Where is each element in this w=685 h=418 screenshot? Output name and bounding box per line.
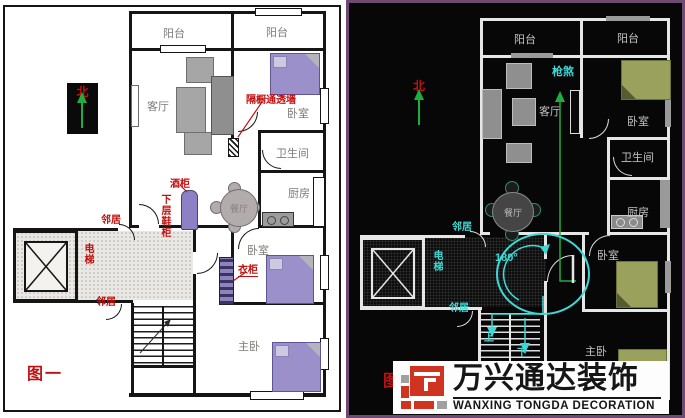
- annotation-neighbor: 邻居: [96, 293, 116, 308]
- room-label-bathroom: 卫生间: [621, 149, 654, 165]
- watermark-logo-square: [437, 401, 447, 409]
- wall: [231, 11, 234, 51]
- wall: [258, 130, 261, 173]
- room-label-balcony: 阳台: [617, 30, 639, 46]
- room-label-balcony: 阳台: [514, 31, 536, 47]
- coffee-table: [512, 98, 536, 126]
- watermark-logo-square: [401, 401, 411, 409]
- annotation-neighbor: 邻居: [452, 218, 472, 233]
- room-label-bedroom: 卧室: [627, 113, 649, 129]
- wall: [607, 180, 610, 235]
- room-label-master: 主卧: [585, 343, 607, 359]
- room-label-bedroom: 卧室: [287, 105, 309, 121]
- window: [320, 88, 329, 124]
- annotation-neighbor: 邻居: [101, 211, 121, 226]
- wine-cabinet: [181, 190, 198, 230]
- wall: [480, 55, 670, 58]
- wall: [258, 170, 326, 173]
- sofa: [482, 89, 502, 139]
- wall: [480, 232, 490, 235]
- compass-north-label: 北: [76, 85, 88, 99]
- annotation-shoe-cabinet: 下层鞋柜: [157, 194, 172, 250]
- floorplan-comparison: 北: [0, 0, 685, 418]
- wall: [580, 18, 583, 55]
- wall: [544, 232, 547, 259]
- annotation-stairs-up: 上: [484, 329, 494, 344]
- room-label-master: 主卧: [238, 338, 260, 354]
- wall: [510, 232, 589, 235]
- window: [250, 391, 304, 400]
- room-label-balcony: 阳台: [163, 25, 185, 41]
- chair: [184, 132, 212, 155]
- door-arc: [547, 255, 573, 282]
- bed: [621, 60, 671, 100]
- logo-stroke: [424, 378, 436, 391]
- kitchen-counter: [313, 177, 325, 227]
- elevator-cab: [371, 248, 415, 299]
- annotation-stairs-down: 下: [517, 344, 527, 359]
- annotation-wardrobe: 衣柜: [238, 261, 258, 277]
- logo-stroke: [414, 372, 440, 376]
- annotation-elevator: 电梯: [429, 250, 444, 280]
- window: [320, 338, 329, 370]
- watermark-en-text: WANXING TONGDA DECORATION: [453, 400, 655, 412]
- window: [511, 53, 553, 58]
- annotation-wine-cabinet: 酒柜: [170, 175, 190, 190]
- elevator-cab: [24, 241, 68, 292]
- window: [255, 8, 302, 16]
- dining-label: 餐厅: [504, 208, 522, 218]
- burner-icon: [280, 216, 289, 225]
- wall: [129, 225, 139, 228]
- dining-table: 餐厅: [492, 192, 534, 232]
- chair: [186, 57, 214, 83]
- door-arc: [589, 119, 609, 139]
- partition-hatch: [228, 138, 239, 157]
- room-label-living: 客厅: [539, 103, 561, 119]
- room-label-kitchen: 厨房: [627, 204, 649, 220]
- kitchen-counter: [660, 180, 670, 228]
- annotation-elevator: 电梯: [80, 243, 95, 273]
- annotation-partition: 隔橱通透墙: [246, 91, 296, 106]
- dining-label: 餐厅: [230, 204, 248, 214]
- stairs-divider: [162, 306, 164, 365]
- watermark-logo-square: [414, 401, 434, 409]
- window: [606, 16, 650, 21]
- wall: [607, 137, 610, 180]
- compass-north-label: 北: [413, 77, 425, 94]
- coffee-table: [176, 87, 206, 133]
- room-label-bedroom: 卧室: [247, 242, 269, 258]
- figure-label: 图一: [27, 360, 63, 384]
- watermark: 万兴通达装饰 WANXING TONGDA DECORATION: [393, 361, 669, 414]
- tv-cabinet: [570, 90, 580, 134]
- bed: [270, 53, 320, 95]
- watermark-logo-square: [401, 386, 409, 398]
- watermark-rule: [453, 397, 661, 399]
- right-floorplan-panel: 北: [346, 0, 685, 418]
- room-label-bathroom: 卫生间: [276, 145, 309, 161]
- watermark-cn-text: 万兴通达装饰: [453, 364, 639, 394]
- wall: [582, 235, 585, 309]
- annotation-gun-sha: 枪煞: [552, 63, 574, 79]
- bed: [272, 342, 321, 392]
- chair: [506, 143, 532, 163]
- wall: [580, 58, 583, 138]
- dining-table: 餐厅: [220, 189, 258, 227]
- window: [160, 45, 206, 53]
- wall: [610, 232, 670, 235]
- wall: [258, 173, 261, 228]
- annotation-180: 180°: [495, 252, 518, 264]
- wall: [607, 137, 670, 140]
- wall: [258, 130, 326, 133]
- annotation-neighbor: 邻居: [449, 299, 469, 314]
- wall: [133, 365, 195, 368]
- burner-icon: [267, 216, 276, 225]
- watermark-logo-mark: [410, 366, 444, 396]
- watermark-logo-square: [401, 375, 409, 383]
- wardrobe: [219, 257, 234, 305]
- burner-icon: [616, 218, 625, 227]
- bed: [616, 261, 658, 308]
- sofa: [211, 76, 234, 135]
- compass: 北: [67, 83, 98, 134]
- wall: [129, 48, 326, 51]
- wall: [582, 309, 670, 312]
- left-floorplan-panel: 北: [0, 0, 346, 418]
- room-label-bedroom: 卧室: [597, 247, 619, 263]
- stove: [262, 212, 294, 227]
- chair: [506, 63, 532, 89]
- room-label-balcony: 阳台: [266, 24, 288, 40]
- tv-cabinet: [131, 85, 139, 127]
- window: [665, 261, 671, 293]
- room-label-kitchen: 厨房: [288, 185, 310, 201]
- room-label-living: 客厅: [147, 98, 169, 114]
- window: [320, 255, 329, 290]
- wall: [193, 274, 196, 397]
- bed: [266, 255, 314, 304]
